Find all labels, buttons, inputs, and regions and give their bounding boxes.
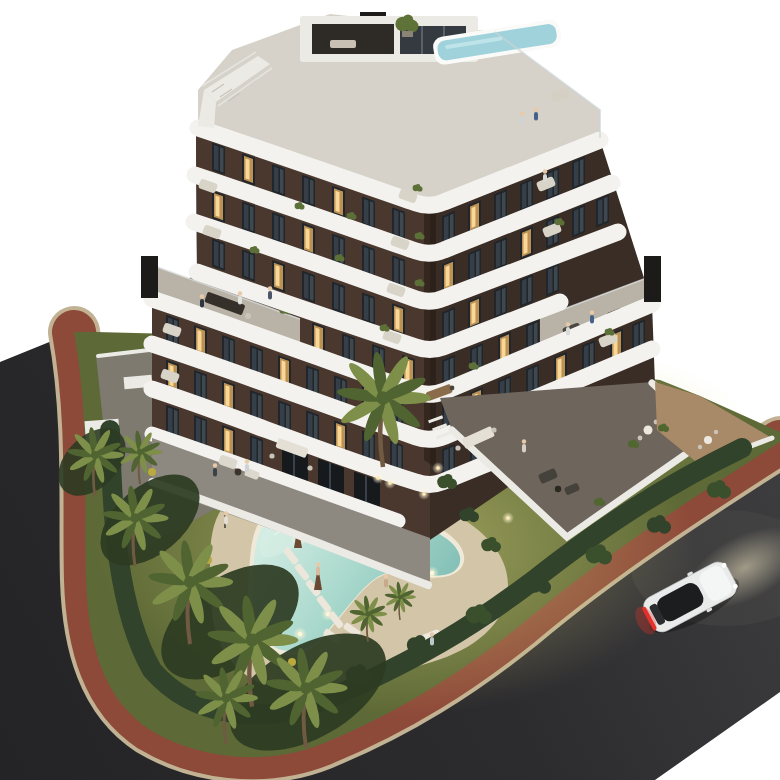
person [384,574,388,587]
window [546,263,559,296]
window [302,271,315,304]
glazing-mullion [421,26,423,54]
window [272,260,285,293]
window [302,175,315,208]
person [534,107,538,120]
person [200,294,204,307]
penthouse-sofa [330,40,356,48]
chair [307,465,312,470]
person [268,286,272,299]
yellow-flower-tuft [148,468,156,476]
chair [269,453,274,458]
person [245,459,249,472]
penthouse-recess [312,24,394,54]
window [272,212,285,245]
window [520,226,533,259]
window [242,249,255,282]
person [224,511,228,524]
window [362,292,375,325]
window [596,194,609,227]
chair [450,386,455,391]
window [332,282,345,315]
person [316,562,320,575]
person [522,439,526,452]
window [494,237,507,270]
chimney [141,256,158,298]
architectural-render [0,0,780,780]
window [212,142,225,175]
chair [714,430,718,434]
round-table [644,426,653,435]
window [572,204,585,237]
chair [245,313,251,319]
window [212,238,225,271]
round-table [704,436,712,444]
window [494,285,507,318]
person [430,632,434,645]
chair [698,445,702,449]
window [520,274,533,307]
coffee-table [555,486,561,492]
chimney [644,256,661,302]
window [332,186,345,219]
window [242,201,255,234]
person [566,322,570,335]
person [238,291,242,304]
coffee-table [235,469,242,476]
chair [455,445,460,450]
person [213,463,217,476]
person [543,169,547,182]
render-canvas [0,0,780,780]
window [572,156,585,189]
window [242,153,255,186]
chair [491,427,496,432]
person [520,111,524,124]
window [212,190,225,223]
person [590,310,594,323]
chair [638,436,643,441]
window [272,164,285,197]
roof-tree-pot [402,31,413,37]
